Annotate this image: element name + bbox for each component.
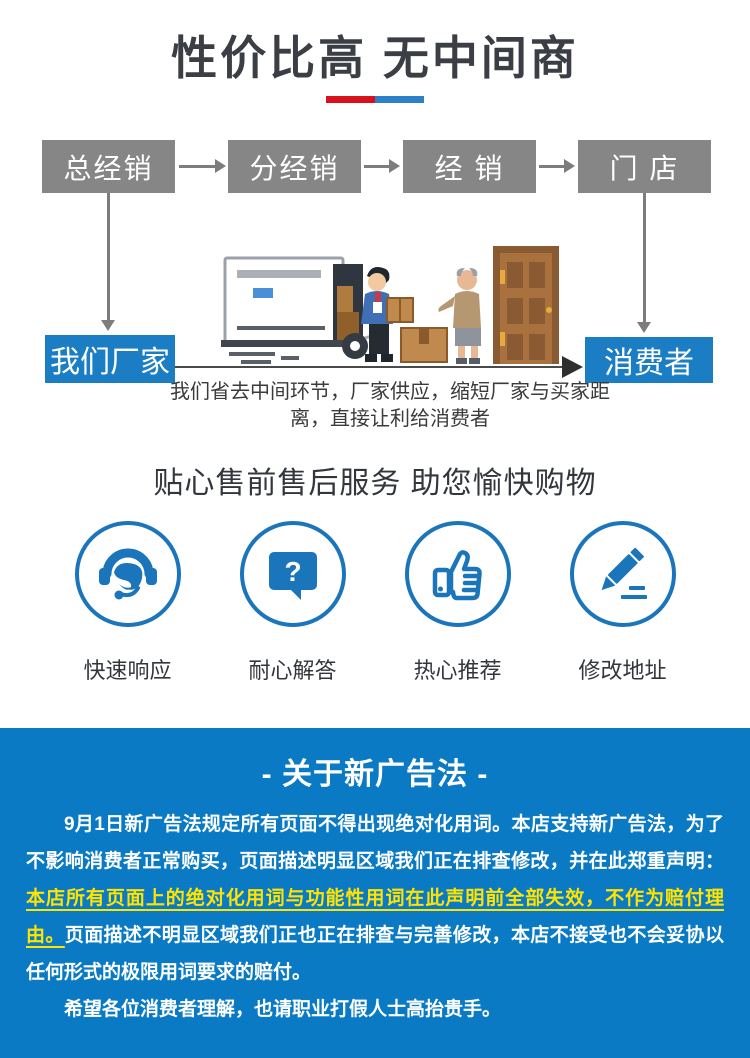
notice-title: - 关于新广告法 -	[0, 728, 750, 793]
arrow-right-icon	[364, 165, 389, 168]
arrow-right-icon	[562, 356, 583, 378]
service-label: 热心推荐	[413, 653, 501, 685]
service-label: 快速响应	[83, 653, 171, 685]
question-bubble-icon: ?	[240, 521, 346, 627]
service-item-change-address: 修改地址	[540, 521, 705, 685]
arrow-right-icon	[539, 165, 564, 168]
services-row: 快速响应 ? 耐心解答	[45, 521, 705, 685]
ad-law-notice-section: - 关于新广告法 - 9月1日新广告法规定所有页面不得出现绝对化用词。本店支持新…	[0, 728, 750, 1058]
flow-box-sub-distributor: 分经销	[228, 140, 361, 193]
promo-page: 性价比高 无中间商 总经销 分经销 经 销 门 店	[0, 0, 750, 1058]
delivery-illustration	[215, 240, 585, 368]
flow-box-dealer: 经 销	[403, 140, 536, 193]
services-title: 贴心售前售后服务 助您愉快购物	[0, 458, 750, 502]
arrow-right-icon	[179, 165, 215, 168]
flow-caption-line1: 我们省去中间环节，厂家供应，缩短厂家与买家距	[150, 379, 630, 406]
divider-red-segment	[326, 96, 375, 103]
consumer-box: 消费者	[585, 337, 713, 383]
notice-body: 9月1日新广告法规定所有页面不得出现绝对化用词。本店支持新广告法，为了不影响消费…	[26, 806, 724, 1028]
notice-paragraph-1: 9月1日新广告法规定所有页面不得出现绝对化用词。本店支持新广告法，为了不影响消费…	[26, 806, 724, 991]
truck-graphic	[221, 258, 381, 364]
service-item-patient-answer: ? 耐心解答	[210, 521, 375, 685]
flow-box-store: 门 店	[578, 140, 711, 193]
service-label: 修改地址	[578, 653, 666, 685]
cardboard-boxes-graphic	[401, 328, 447, 362]
svg-text:?: ?	[284, 556, 301, 587]
divider-blue-segment	[375, 96, 424, 103]
headset-icon	[75, 521, 181, 627]
thumbs-up-icon	[405, 521, 511, 627]
flow-caption: 我们省去中间环节，厂家供应，缩短厂家与买家距 离，直接让利给消费者	[150, 379, 630, 433]
door-graphic	[493, 246, 559, 364]
factory-consumer-line	[175, 366, 565, 368]
arrow-down-icon	[643, 193, 646, 323]
service-item-fast-response: 快速响应	[45, 521, 210, 685]
notice-paragraph-2: 希望各位消费者理解，也请职业打假人士高抬贵手。	[26, 991, 724, 1028]
page-title: 性价比高 无中间商	[0, 22, 750, 88]
title-divider	[326, 96, 424, 103]
factory-box: 我们厂家	[45, 335, 175, 383]
pencil-icon	[570, 521, 676, 627]
flow-caption-line2: 离，直接让利给消费者	[150, 406, 630, 433]
arrow-down-icon	[107, 193, 110, 321]
flow-box-general-distributor: 总经销	[42, 140, 175, 193]
service-item-recommend: 热心推荐	[375, 521, 540, 685]
service-label: 耐心解答	[248, 653, 336, 685]
